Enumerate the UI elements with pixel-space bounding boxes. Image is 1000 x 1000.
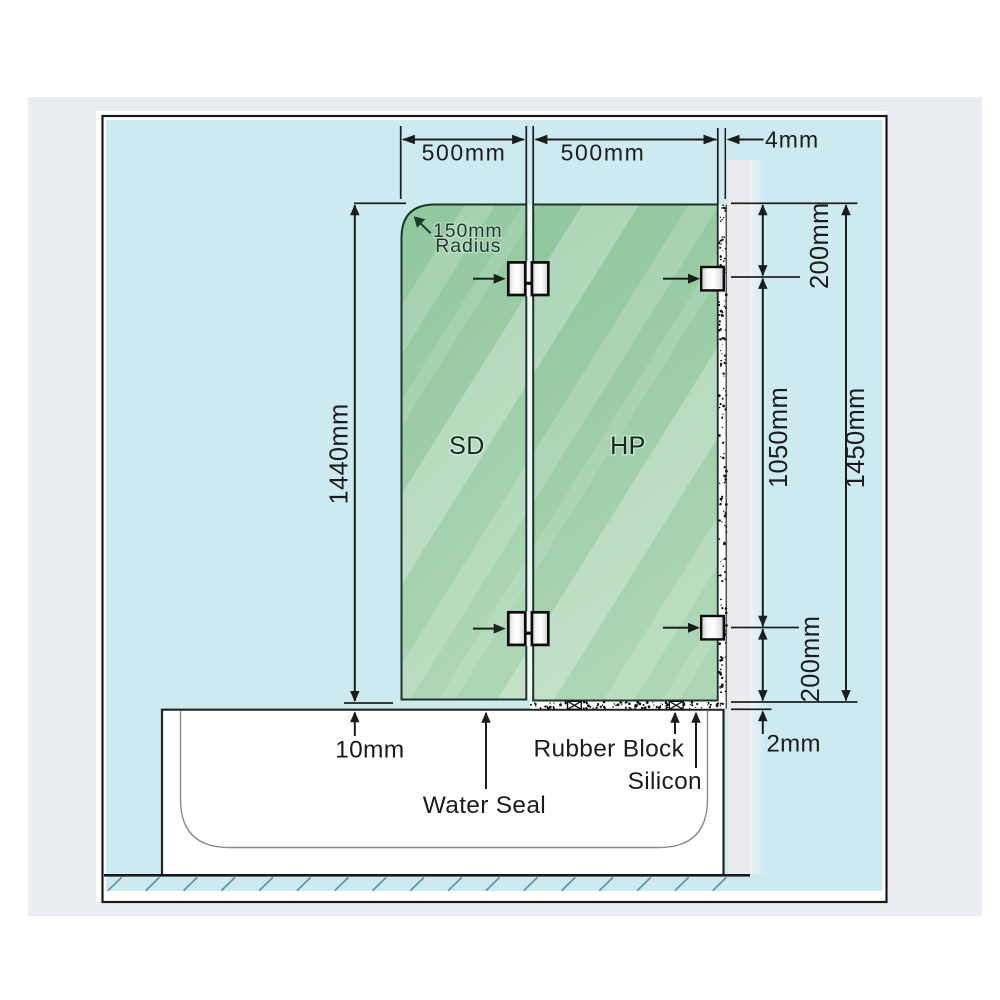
- svg-text:HP: HP: [610, 432, 646, 460]
- svg-text:200mm: 200mm: [797, 616, 825, 703]
- svg-text:Water Seal: Water Seal: [423, 792, 546, 819]
- svg-text:Radius: Radius: [435, 235, 501, 257]
- svg-text:2mm: 2mm: [767, 731, 821, 758]
- svg-text:4mm: 4mm: [765, 127, 819, 153]
- svg-text:10mm: 10mm: [335, 737, 404, 764]
- svg-text:SD: SD: [449, 432, 485, 460]
- svg-text:1050mm: 1050mm: [765, 387, 793, 488]
- svg-text:Rubber Block: Rubber Block: [533, 736, 684, 763]
- svg-text:1440mm: 1440mm: [326, 403, 354, 504]
- svg-text:200mm: 200mm: [806, 202, 834, 289]
- svg-text:1450mm: 1450mm: [842, 387, 870, 488]
- svg-text:500mm: 500mm: [422, 140, 507, 166]
- svg-text:500mm: 500mm: [561, 140, 646, 166]
- svg-text:Silicon: Silicon: [628, 768, 702, 795]
